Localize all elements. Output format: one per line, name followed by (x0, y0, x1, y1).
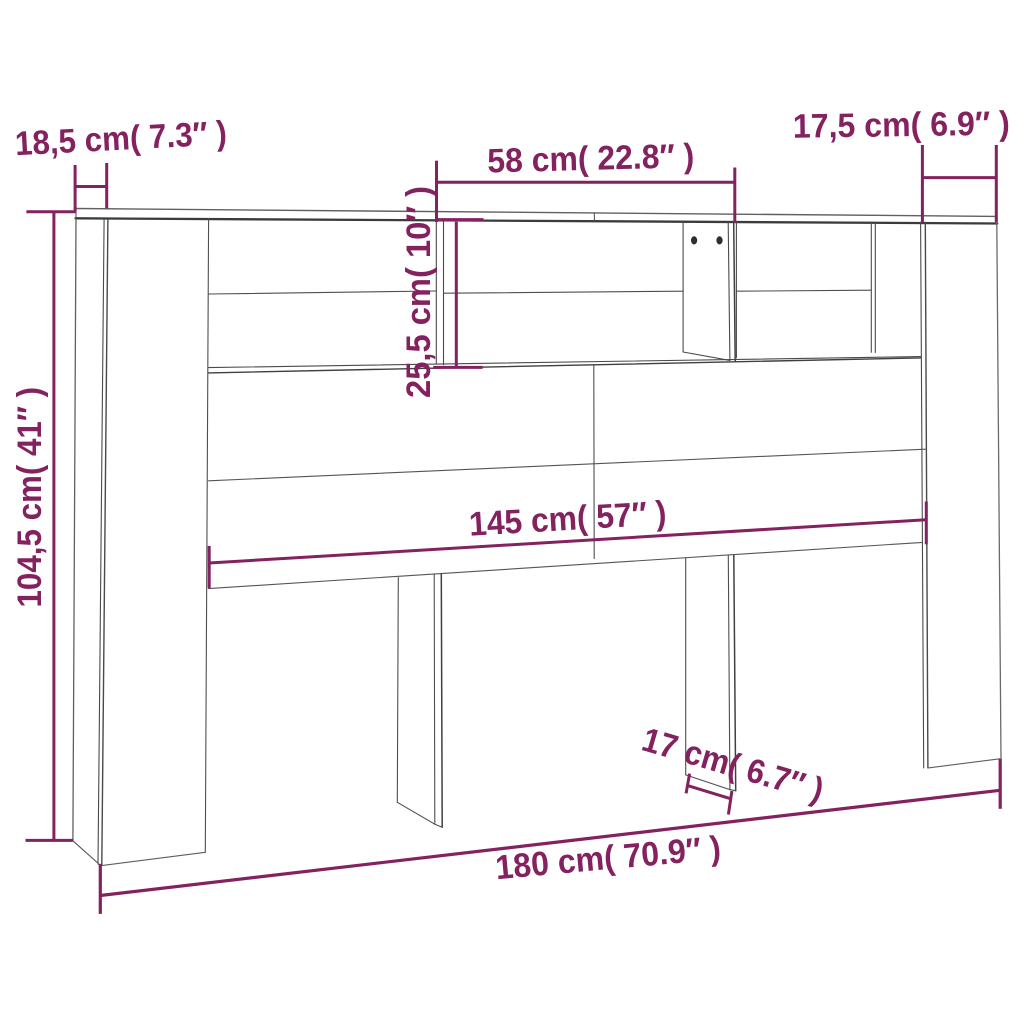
svg-text:104,5 cm( 41″ ): 104,5 cm( 41″ ) (11, 387, 49, 608)
svg-text:17,5 cm( 6.9″ ): 17,5 cm( 6.9″ ) (793, 105, 1011, 146)
svg-text:58 cm( 22.8″ ): 58 cm( 22.8″ ) (487, 137, 695, 180)
svg-text:25,5 cm( 10″ ): 25,5 cm( 10″ ) (400, 186, 438, 398)
